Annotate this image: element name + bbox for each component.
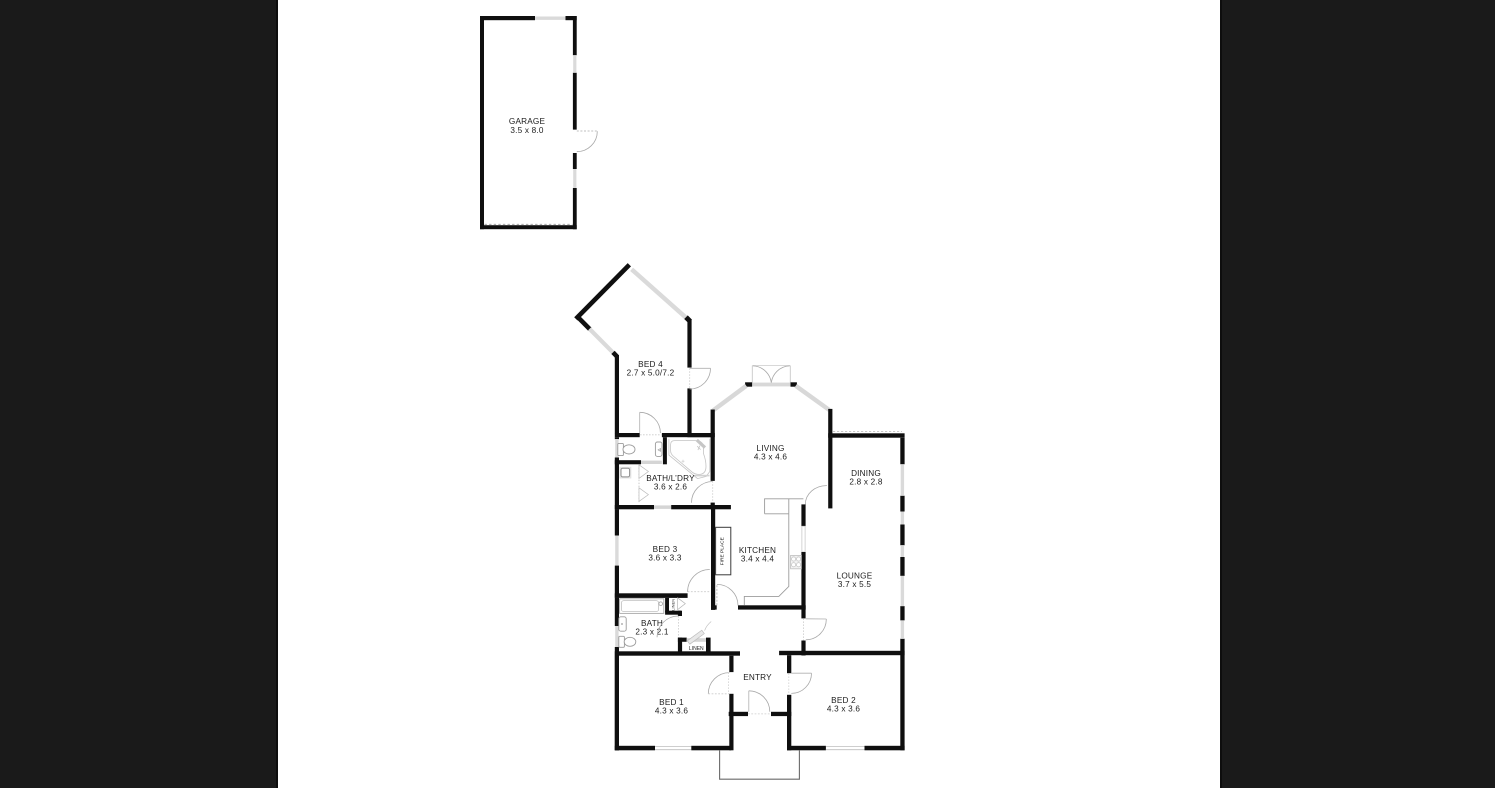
svg-text:ENTRY: ENTRY: [743, 673, 772, 682]
svg-text:2.7 x 5.0/7.2: 2.7 x 5.0/7.2: [627, 369, 675, 378]
svg-text:3.7 x 5.5: 3.7 x 5.5: [838, 580, 871, 589]
svg-text:3.6 x 2.6: 3.6 x 2.6: [654, 483, 687, 492]
svg-text:3.6 x 3.3: 3.6 x 3.3: [648, 554, 681, 563]
svg-text:3.4 x 4.4: 3.4 x 4.4: [741, 555, 774, 564]
svg-text:4.3 x 3.6: 4.3 x 3.6: [655, 707, 688, 716]
svg-text:LINEN: LINEN: [670, 599, 675, 611]
svg-text:3.5 x 8.0: 3.5 x 8.0: [510, 126, 543, 135]
svg-text:FIRE PLACE: FIRE PLACE: [719, 537, 725, 565]
svg-text:4.3 x 4.6: 4.3 x 4.6: [754, 453, 787, 462]
svg-text:2.3 x 2.1: 2.3 x 2.1: [635, 628, 668, 637]
svg-text:4.3 x 3.6: 4.3 x 3.6: [827, 705, 860, 714]
svg-text:LINEN: LINEN: [689, 646, 704, 652]
svg-text:2.8 x 2.8: 2.8 x 2.8: [849, 478, 882, 487]
